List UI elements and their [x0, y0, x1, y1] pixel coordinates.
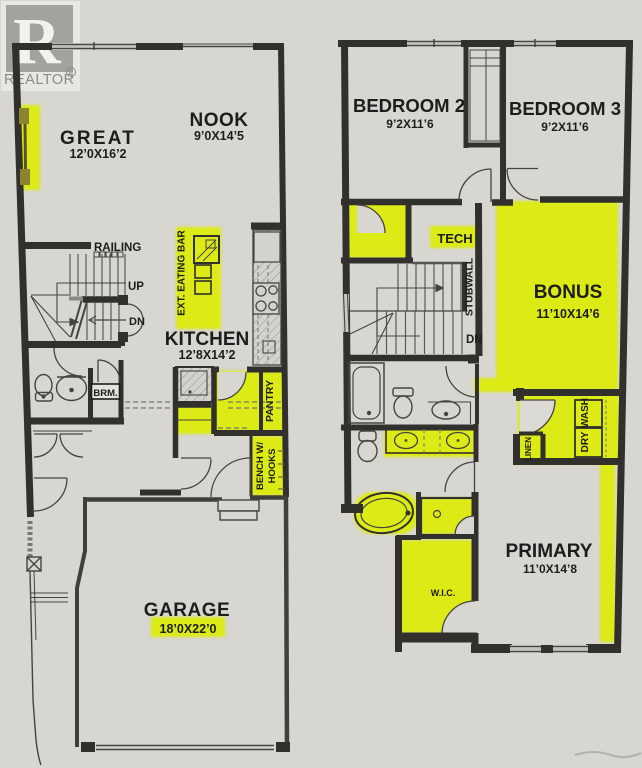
svg-text:HOOKS: HOOKS [267, 449, 278, 484]
svg-text:STUBWALL: STUBWALL [464, 257, 476, 316]
svg-text:BRM.: BRM. [93, 388, 117, 399]
svg-text:BEDROOM 3: BEDROOM 3 [509, 98, 621, 119]
svg-text:DN: DN [129, 316, 145, 328]
svg-text:18’0X22’0: 18’0X22’0 [160, 622, 217, 636]
svg-text:GREAT: GREAT [60, 128, 136, 149]
svg-text:DN: DN [466, 334, 483, 346]
svg-text:9’2X11’6: 9’2X11’6 [541, 120, 589, 134]
svg-text:EXT. EATING BAR: EXT. EATING BAR [177, 230, 188, 316]
svg-text:TECH: TECH [437, 231, 472, 246]
svg-text:11’10X14’6: 11’10X14’6 [536, 307, 599, 321]
svg-text:LINEN: LINEN [524, 437, 533, 461]
svg-text:12’0X16’2: 12’0X16’2 [70, 147, 127, 161]
svg-text:PRIMARY: PRIMARY [506, 541, 593, 562]
svg-text:UP: UP [128, 281, 144, 293]
svg-text:PANTRY: PANTRY [264, 380, 276, 422]
svg-text:DRY: DRY [580, 431, 591, 452]
svg-text:RAILING: RAILING [94, 242, 141, 254]
svg-text:BEDROOM 2: BEDROOM 2 [353, 95, 465, 116]
svg-text:R: R [68, 70, 73, 77]
svg-text:BONUS: BONUS [534, 282, 603, 303]
svg-text:BENCH W/: BENCH W/ [255, 442, 266, 490]
svg-text:9’2X11’6: 9’2X11’6 [386, 117, 434, 131]
svg-text:R: R [13, 5, 62, 78]
svg-text:9’0X14’5: 9’0X14’5 [194, 129, 244, 143]
svg-text:W.I.C.: W.I.C. [431, 588, 456, 598]
svg-text:12’8X14’2: 12’8X14’2 [179, 348, 236, 362]
svg-text:GARAGE: GARAGE [144, 600, 230, 621]
svg-text:WASH: WASH [580, 398, 591, 428]
svg-text:KITCHEN: KITCHEN [165, 329, 249, 350]
svg-text:NOOK: NOOK [190, 110, 249, 131]
svg-text:11’0X14’8: 11’0X14’8 [523, 562, 577, 576]
